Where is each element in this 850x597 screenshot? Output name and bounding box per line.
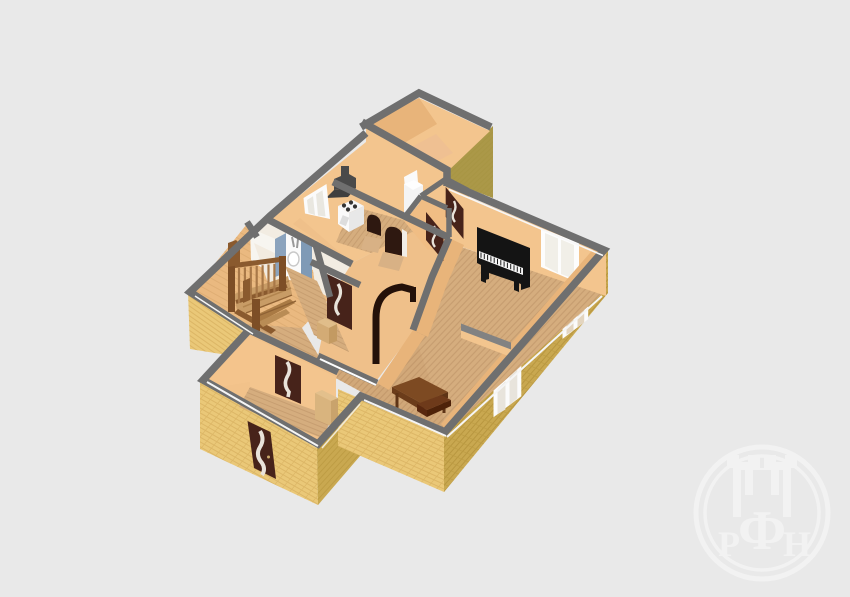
svg-text:Р: Р bbox=[718, 524, 740, 564]
svg-text:Н: Н bbox=[783, 524, 811, 564]
svg-text:Ф: Ф bbox=[738, 500, 786, 562]
